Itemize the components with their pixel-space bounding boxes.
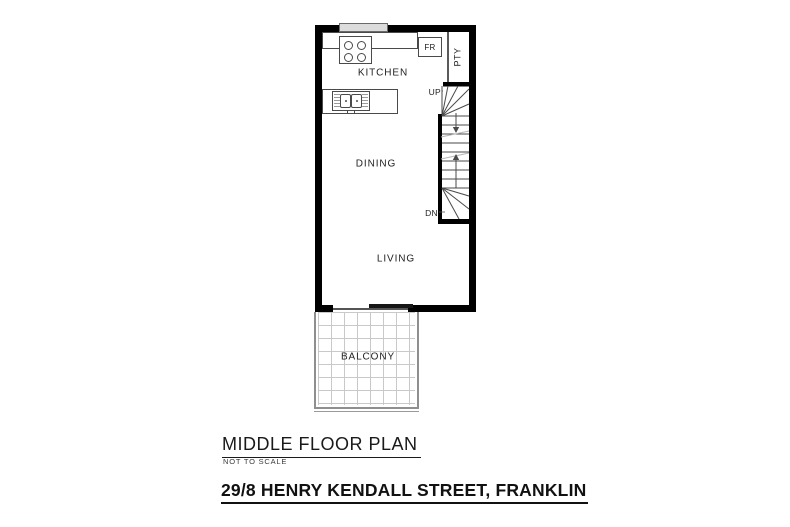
stair-winders-top bbox=[442, 86, 469, 116]
room-label-living: LIVING bbox=[377, 254, 415, 265]
pantry-floor-wall bbox=[443, 82, 469, 87]
room-label-kitchen: KITCHEN bbox=[358, 68, 408, 79]
room-label-balcony: BALCONY bbox=[341, 352, 395, 363]
sliding-door-track bbox=[333, 308, 408, 310]
floor-plan-page: FR PTY bbox=[0, 0, 790, 527]
stair-bottom-wall bbox=[438, 219, 469, 224]
stairs-up-label: UP bbox=[420, 87, 441, 97]
stair-winders-bottom bbox=[442, 188, 469, 219]
stair-side-wall bbox=[438, 114, 442, 219]
room-label-dining: DINING bbox=[356, 159, 396, 170]
plan-title: MIDDLE FLOOR PLAN bbox=[222, 434, 421, 458]
balcony-railing-line bbox=[314, 411, 419, 412]
down-arrow-icon bbox=[453, 127, 459, 133]
property-address: 29/8 HENRY KENDALL STREET, FRANKLIN bbox=[221, 480, 588, 504]
scale-note: NOT TO SCALE bbox=[223, 457, 287, 466]
sliding-door-panel bbox=[369, 304, 413, 308]
stairs-down-label: DN bbox=[420, 208, 438, 218]
